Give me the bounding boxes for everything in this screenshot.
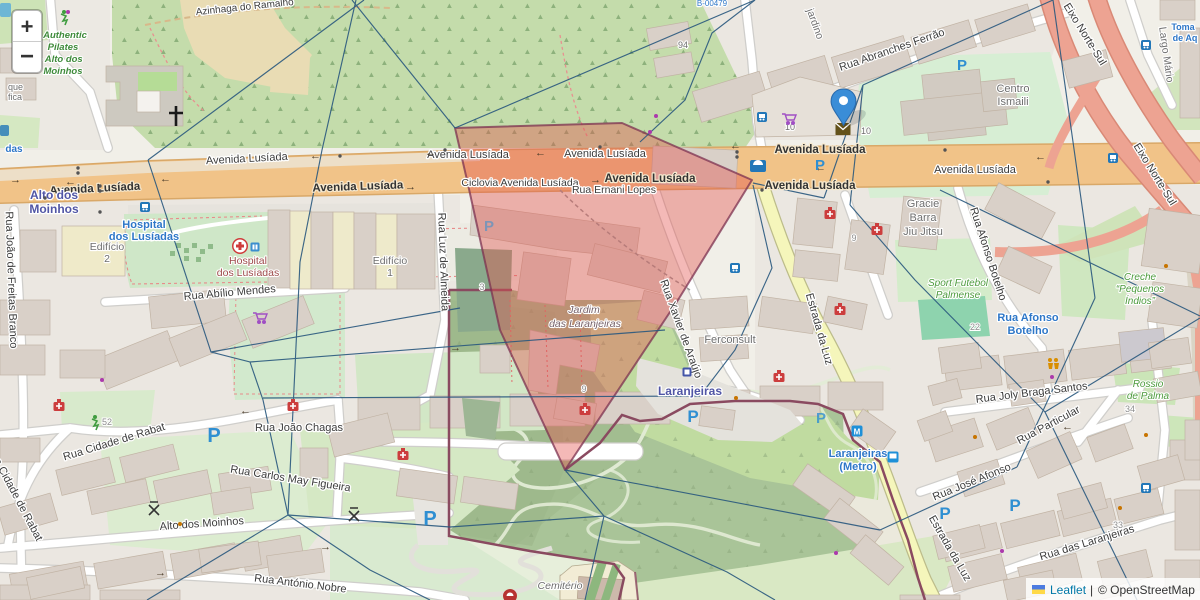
svg-text:33: 33: [1113, 520, 1123, 530]
svg-text:−: −: [20, 43, 34, 70]
svg-text:Alto dos: Alto dos: [30, 188, 78, 202]
svg-text:das Laranjeiras: das Laranjeiras: [549, 318, 622, 330]
svg-text:dos Lusíadas: dos Lusíadas: [217, 267, 279, 279]
svg-text:P: P: [939, 504, 950, 523]
svg-text:←: ←: [425, 147, 436, 159]
svg-text:Gracie: Gracie: [907, 198, 939, 210]
svg-text:P: P: [484, 218, 494, 235]
svg-text:Avenida Lusíada: Avenida Lusíada: [775, 144, 867, 156]
svg-text:Botelho: Botelho: [1008, 325, 1049, 337]
svg-text:3: 3: [479, 282, 484, 292]
svg-text:←: ←: [1035, 151, 1046, 163]
svg-text:© OpenStreetMap: © OpenStreetMap: [1098, 583, 1195, 597]
svg-text:Ciclovia Avenida Lusíada: Ciclovia Avenida Lusíada: [461, 177, 578, 189]
svg-text:Ferconsult: Ferconsult: [704, 334, 755, 346]
svg-text:M: M: [854, 428, 861, 437]
svg-text:P: P: [687, 407, 698, 426]
svg-text:←: ←: [535, 147, 546, 159]
svg-text:→: →: [405, 181, 416, 193]
svg-text:- Alto dos: - Alto dos: [39, 54, 82, 65]
svg-text:Rua Afonso: Rua Afonso: [997, 312, 1059, 324]
svg-text:Edifício: Edifício: [90, 241, 125, 253]
svg-text:→: →: [450, 342, 461, 354]
svg-text:Laranjeiras: Laranjeiras: [829, 448, 888, 460]
svg-text:←: ←: [310, 150, 321, 162]
svg-text:←: ←: [160, 173, 171, 185]
svg-text:das: das: [5, 144, 23, 155]
svg-text:34: 34: [1125, 404, 1135, 414]
svg-text:9: 9: [581, 384, 586, 394]
svg-text:Ismaili: Ismaili: [997, 96, 1028, 108]
svg-text:Moinhos: Moinhos: [29, 202, 79, 216]
svg-text:→: →: [10, 174, 21, 186]
svg-text:de Aq: de Aq: [1173, 33, 1198, 43]
svg-text:B-00479: B-00479: [697, 0, 728, 8]
svg-text:que: que: [8, 82, 23, 92]
svg-text:Laranjeiras: Laranjeiras: [658, 384, 722, 398]
svg-text:→: →: [590, 174, 601, 186]
svg-text:9: 9: [851, 233, 856, 243]
svg-text:+: +: [21, 14, 34, 39]
svg-text:←: ←: [730, 140, 741, 152]
svg-text:→: →: [155, 567, 166, 579]
svg-text:Rua João Chagas: Rua João Chagas: [255, 422, 344, 434]
svg-text:Rua Ernani Lopes: Rua Ernani Lopes: [572, 184, 656, 196]
svg-text:Moinhos: Moinhos: [43, 66, 82, 77]
svg-text:Palmense: Palmense: [936, 290, 981, 301]
svg-text:Avenida Lusíada: Avenida Lusíada: [765, 180, 857, 192]
svg-text:P: P: [815, 157, 825, 174]
svg-text:←: ←: [240, 405, 251, 417]
svg-text:Cemitério: Cemitério: [538, 580, 583, 592]
svg-text:Índios”: Índios”: [1125, 294, 1156, 307]
svg-text:Hospital: Hospital: [229, 255, 267, 267]
svg-text:Hospital: Hospital: [122, 219, 165, 231]
svg-text:2: 2: [104, 253, 110, 265]
svg-text:22: 22: [970, 322, 980, 332]
svg-text:“Pequenos: “Pequenos: [1116, 284, 1164, 295]
svg-text:P: P: [423, 508, 436, 530]
svg-text:Pilates: Pilates: [48, 42, 79, 53]
svg-text:Authentic: Authentic: [42, 30, 88, 41]
svg-text:Toma: Toma: [1171, 22, 1195, 32]
svg-text:Barra: Barra: [910, 212, 938, 224]
svg-text:←: ←: [65, 176, 76, 188]
svg-text:52: 52: [102, 417, 112, 427]
svg-text:→: →: [320, 541, 331, 553]
svg-text:Creche: Creche: [1124, 272, 1157, 283]
svg-text:P: P: [207, 425, 220, 447]
svg-text:Avenida Lusíada: Avenida Lusíada: [564, 148, 647, 160]
svg-text:(Metro): (Metro): [839, 461, 877, 473]
svg-text:Sport Futebol: Sport Futebol: [928, 278, 989, 289]
svg-text:P: P: [957, 57, 967, 74]
svg-text:94: 94: [678, 40, 688, 50]
svg-text:1: 1: [387, 267, 393, 279]
svg-text:Leaflet: Leaflet: [1050, 583, 1087, 597]
svg-text:fica: fica: [8, 92, 22, 102]
svg-text:|: |: [1090, 583, 1093, 597]
svg-text:Edifício: Edifício: [373, 255, 408, 267]
svg-text:Avenida Lusíada: Avenida Lusíada: [427, 149, 510, 161]
svg-text:Avenida Lusíada: Avenida Lusíada: [934, 164, 1017, 176]
svg-text:Jiu Jitsu: Jiu Jitsu: [903, 226, 943, 238]
svg-text:P: P: [1009, 496, 1020, 515]
svg-text:Rossio: Rossio: [1133, 379, 1164, 390]
svg-text:P: P: [816, 410, 826, 427]
svg-text:de Palma: de Palma: [1127, 391, 1170, 402]
svg-text:Centro: Centro: [996, 83, 1029, 95]
svg-text:10: 10: [861, 126, 871, 136]
svg-text:Jardim: Jardim: [567, 304, 600, 316]
